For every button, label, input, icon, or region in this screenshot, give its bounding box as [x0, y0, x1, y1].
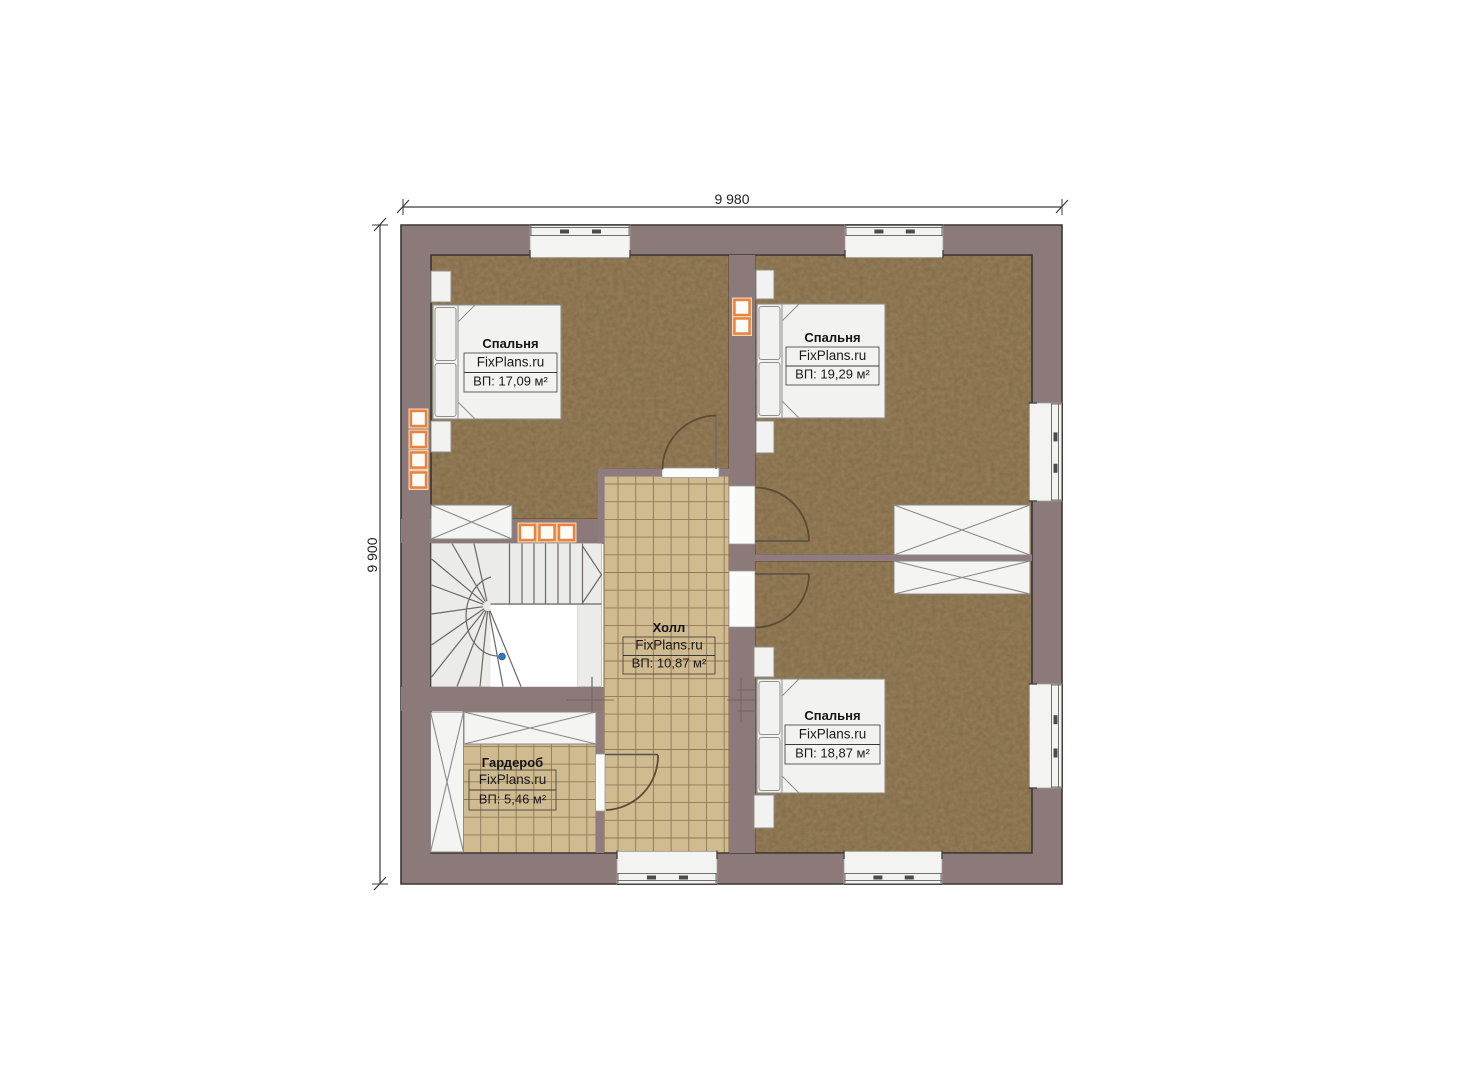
svg-text:9 900: 9 900	[364, 537, 380, 572]
svg-text:ВП: 17,09 м²: ВП: 17,09 м²	[473, 374, 548, 389]
svg-text:ВП: 18,87 м²: ВП: 18,87 м²	[795, 746, 870, 761]
svg-text:ВП: 5,46 м²: ВП: 5,46 м²	[479, 792, 547, 807]
svg-text:FixPlans.ru: FixPlans.ru	[635, 638, 703, 653]
svg-text:9 980: 9 980	[714, 191, 749, 207]
svg-text:FixPlans.ru: FixPlans.ru	[479, 772, 547, 787]
svg-text:Гардероб: Гардероб	[482, 755, 543, 770]
svg-text:Спальня: Спальня	[804, 708, 860, 723]
svg-text:FixPlans.ru: FixPlans.ru	[799, 727, 867, 742]
svg-text:ВП: 19,29 м²: ВП: 19,29 м²	[795, 367, 870, 382]
svg-text:ВП: 10,87 м²: ВП: 10,87 м²	[632, 656, 707, 671]
svg-text:Спальня: Спальня	[482, 336, 538, 351]
svg-text:Спальня: Спальня	[804, 330, 860, 345]
svg-text:FixPlans.ru: FixPlans.ru	[799, 348, 867, 363]
svg-text:Холл: Холл	[653, 620, 686, 635]
svg-text:FixPlans.ru: FixPlans.ru	[477, 355, 545, 370]
